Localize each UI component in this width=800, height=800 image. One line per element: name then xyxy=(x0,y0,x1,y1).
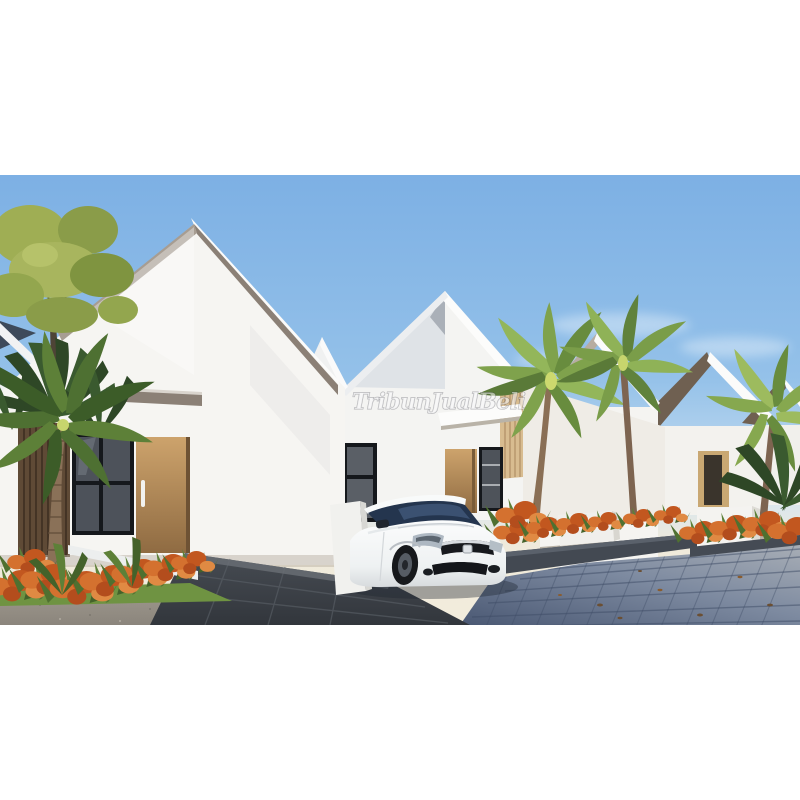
car-foglight xyxy=(488,565,500,573)
property-photo: TribunJualBeli xyxy=(0,175,800,625)
car-body xyxy=(350,520,506,587)
watermark: TribunJualBeli xyxy=(352,389,526,415)
scene-svg: TribunJualBeli xyxy=(0,175,800,625)
house2-window-right xyxy=(482,450,500,508)
watermark-text: TribunJualBeli xyxy=(352,389,526,415)
house1-door-handle xyxy=(141,480,145,507)
page-canvas: TribunJualBeli xyxy=(0,0,800,800)
honda-logo xyxy=(463,545,472,553)
